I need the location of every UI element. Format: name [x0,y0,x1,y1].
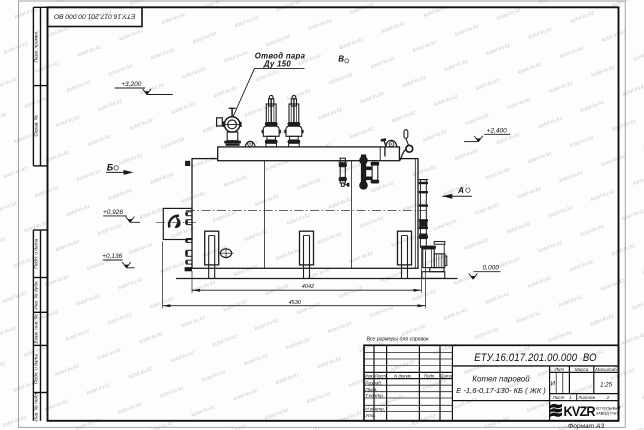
svg-text:+0,136: +0,136 [102,253,122,260]
svg-text:4042: 4042 [302,284,315,290]
svg-text:В: В [338,54,344,63]
svg-text:Утв.: Утв. [365,413,376,418]
svg-text:1: 1 [569,395,572,400]
svg-text:Формат А3: Формат А3 [568,423,604,430]
svg-text:Подп.: Подп. [424,374,436,379]
svg-text:А: А [457,186,464,195]
svg-text:Подп. и дата: Подп. и дата [33,238,39,268]
svg-text:И: И [551,382,556,388]
svg-text:+3,200: +3,200 [121,81,141,88]
svg-text:Все размеры для справок: Все размеры для справок [367,336,430,342]
svg-text:Пров.: Пров. [365,387,377,392]
svg-text:ЗАВОД РЭП: ЗАВОД РЭП [596,410,619,415]
svg-text:ЕТУ.16.017.201.00.000 ВО: ЕТУ.16.017.201.00.000 ВО [53,13,135,20]
svg-text:Изм.: Изм. [364,374,373,379]
svg-text:0,000: 0,000 [483,265,500,272]
svg-text:Лист: Лист [374,374,387,379]
svg-text:KVZR: KVZR [564,404,596,420]
svg-text:1:25: 1:25 [600,382,613,389]
svg-text:4530: 4530 [289,300,302,306]
svg-text:2: 2 [606,395,610,400]
svg-text:Взам. инв. №: Взам. инв. № [33,314,39,344]
svg-text:Дата: Дата [439,374,452,379]
svg-text:Лист: Лист [552,395,565,400]
svg-text:Перв. примен.: Перв. примен. [33,31,39,63]
svg-text:Н.контр.: Н.контр. [365,407,385,412]
svg-text:N докум.: N докум. [394,374,412,379]
svg-text:Инв. № дубл.: Инв. № дубл. [33,280,39,310]
svg-text:Масштаб: Масштаб [595,367,617,372]
svg-text:Лит: Лит [554,367,565,372]
svg-text:Инв. № подл.: Инв. № подл. [33,392,39,422]
svg-text:+0,926: +0,926 [103,209,123,216]
svg-text:Масса: Масса [575,367,589,372]
svg-text:Т.контр.: Т.контр. [365,393,384,398]
svg-text:Справ. №: Справ. № [33,115,39,137]
svg-text:Е -1,6-0,17-130- КБ ( ЖК ): Е -1,6-0,17-130- КБ ( ЖК ) [456,386,546,395]
svg-text:ЕТУ.16.017.201.00.000 ВО: ЕТУ.16.017.201.00.000 ВО [474,352,596,364]
svg-text:Б: Б [107,162,114,172]
svg-text:Ду 150: Ду 150 [263,59,291,68]
svg-text:Подп. и дата: Подп. и дата [33,354,39,384]
svg-text:Разраб.: Разраб. [365,380,382,385]
svg-text:Листов: Листов [577,395,595,400]
svg-text:+2,400: +2,400 [487,127,507,134]
svg-text:Котел паровой: Котел паровой [472,375,530,384]
